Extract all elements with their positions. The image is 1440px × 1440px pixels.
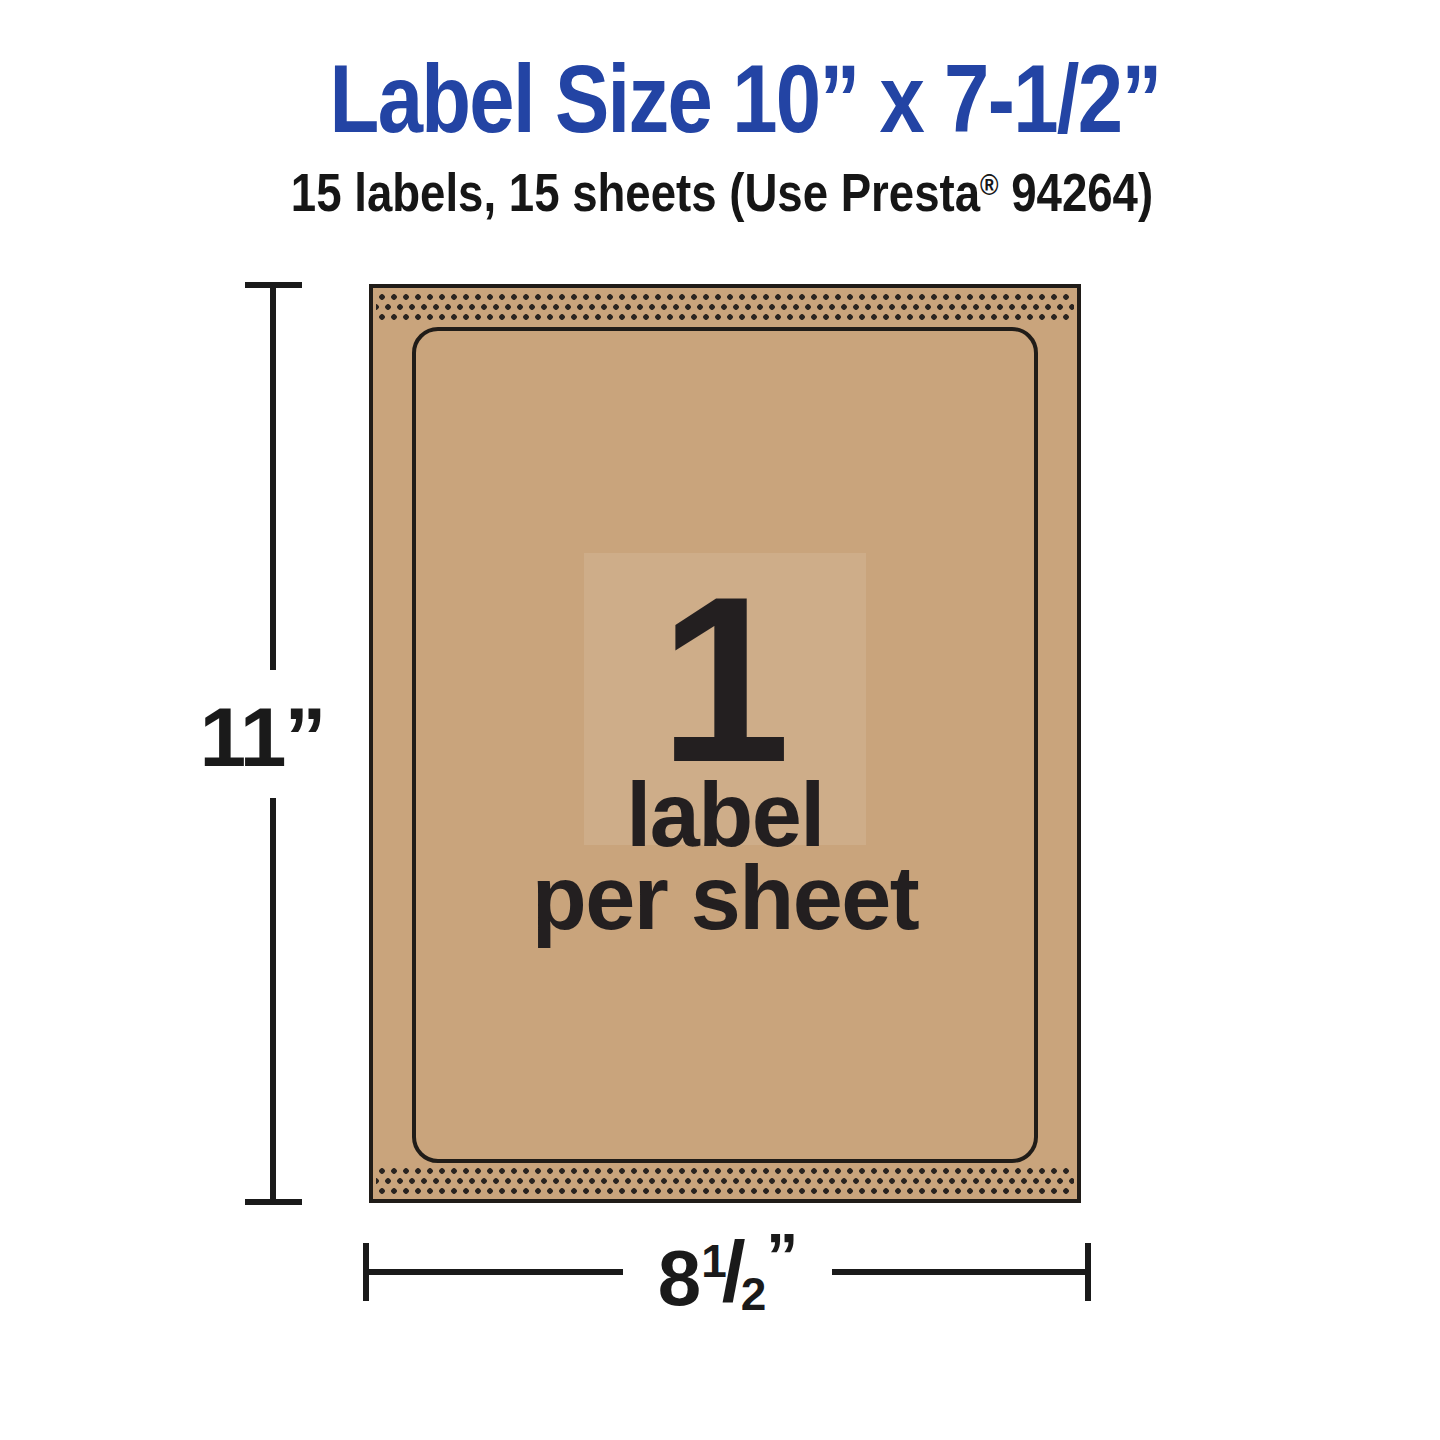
- width-dim-line-left: [363, 1269, 623, 1275]
- label-sheet: 1 label per sheet: [369, 284, 1081, 1203]
- label-outline: 1 label per sheet: [412, 327, 1038, 1163]
- height-dim-line-upper: [270, 282, 276, 670]
- perforation-strip-top: [376, 291, 1074, 322]
- width-dim-quote: ”: [766, 1221, 798, 1293]
- width-dim-whole: 8: [658, 1234, 701, 1322]
- label-size-diagram: Label Size 10” x 7-1/2” 15 labels, 15 sh…: [0, 0, 1440, 1440]
- height-dim-cap-bottom: [245, 1199, 302, 1205]
- perforation-strip-bottom: [376, 1165, 1074, 1196]
- label-copy: 1 label per sheet: [416, 331, 1034, 1159]
- page-title: Label Size 10” x 7-1/2”: [140, 50, 1350, 147]
- width-dim-denominator: 2: [741, 1268, 767, 1320]
- label-caption-line2: per sheet: [532, 857, 919, 941]
- width-dim-line-right: [832, 1269, 1091, 1275]
- height-dim-line-lower: [270, 798, 276, 1199]
- width-dim-label: 81/2”: [623, 1232, 833, 1318]
- height-dim-label: 11”: [162, 695, 362, 779]
- subtitle-text-pre: 15 labels, 15 sheets (Use Presta: [291, 163, 980, 222]
- product-subtitle: 15 labels, 15 sheets (Use Presta® 94264): [103, 164, 1341, 222]
- width-dim-tick-right: [1085, 1243, 1091, 1301]
- registered-mark: ®: [980, 169, 998, 201]
- label-caption-line1: label: [626, 774, 824, 858]
- subtitle-text-post: 94264): [999, 163, 1154, 222]
- label-count: 1: [659, 585, 790, 774]
